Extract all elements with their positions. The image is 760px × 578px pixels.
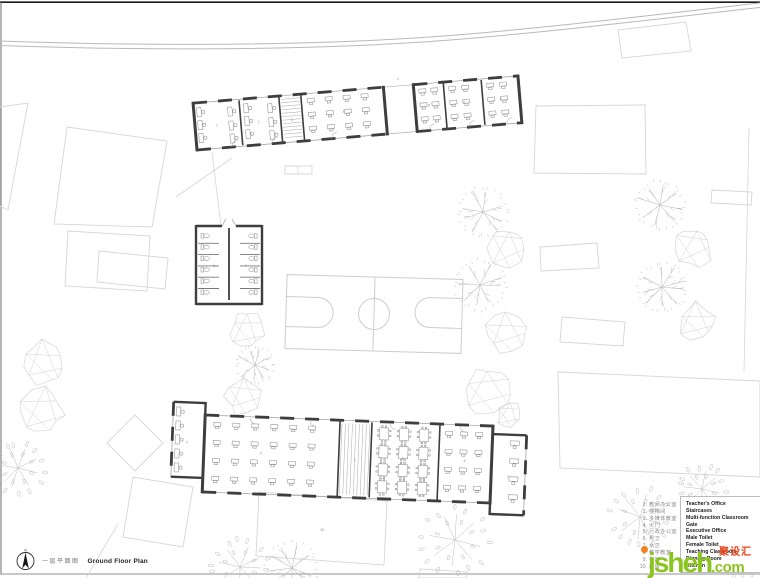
context-building-outline (97, 251, 168, 289)
legend-item-number: 1. (636, 502, 647, 509)
legend-item-zh: 教师办公室 (649, 502, 677, 509)
legend-item-en: Executive Office (686, 528, 760, 535)
drawing-title-zh: 一层平面图 (42, 556, 80, 565)
tree-symbol-polygon (485, 312, 527, 353)
room-label-male-toilet: 6 (213, 264, 215, 268)
room-label-exec-office: 5 (186, 440, 188, 444)
room-label-classroom-n1: 8 (428, 103, 430, 107)
tree-symbol-branch (634, 179, 687, 230)
legend-item-en: Teacher's Office (686, 501, 760, 508)
tree-symbol-polygon (498, 403, 520, 428)
room-label-classroom-s: 8 (260, 451, 262, 455)
tree-symbol-leafy (0, 441, 48, 496)
room-label-classroom-s2: 8 (464, 459, 466, 463)
south-building: 582981 (170, 401, 528, 517)
context-building-outline (65, 231, 150, 291)
tree-symbol-polygon (487, 231, 524, 268)
basketball-court (285, 275, 463, 354)
tree-symbol-leafy (419, 505, 493, 576)
room-label-yard: 10 (320, 528, 324, 532)
north-arrow-icon (22, 553, 29, 569)
legend-item-zh: 多媒体教室 (649, 516, 677, 523)
room-label-stair-north: 2 (291, 118, 293, 122)
site-plan-drawing: 112348886758298110N (0, 0, 760, 578)
tree-symbol-polygon (675, 231, 711, 268)
legend-item-number: 6. (636, 536, 647, 543)
tree-symbol-branch (458, 187, 510, 238)
room-label-dining: 9 (402, 457, 404, 461)
legend-item-number: 5. (636, 529, 647, 536)
compass-north-label: N (24, 548, 27, 552)
watermark-logo: jsheh.com (648, 549, 744, 577)
watermark-domain-suffix: .com (711, 559, 744, 576)
legend-item-number: 10. (636, 564, 647, 571)
tree-symbol-polygon (24, 339, 62, 386)
drawing-title-en: Ground Floor Plan (88, 558, 148, 565)
room-label-gate: 4 (397, 77, 399, 81)
watermark-brand-latin: jsheh (648, 547, 711, 578)
tree-symbol-leafy (208, 536, 271, 578)
context-building-outline (560, 317, 625, 346)
watermark-dot-icon (641, 546, 648, 553)
legend-row: 2.楼梯间 (636, 509, 677, 516)
toilet-building: 67 (196, 219, 262, 305)
legend-item-en: Staircases (686, 508, 760, 515)
drawing-title-block: 一层平面图 Ground Floor Plan (42, 556, 148, 565)
context-building-outline (618, 22, 691, 58)
context-building-outline (0, 103, 28, 210)
tree-symbol-branch (263, 540, 318, 578)
tree-symbol-polygon (680, 301, 715, 340)
legend-item-number: 9. (636, 557, 647, 564)
context-building-outline (107, 415, 163, 471)
legend-row: 1.教师办公室 (636, 502, 677, 509)
context-building-outline (54, 127, 167, 227)
context-building-outline (711, 190, 752, 205)
legend-item-number: 3. (636, 516, 647, 523)
flag-platform (285, 166, 312, 174)
context-building-outline (534, 105, 646, 174)
tree-symbol-branch (636, 262, 686, 313)
room-label-office-b: 1 (258, 120, 260, 124)
room-label-office-s: 1 (507, 475, 509, 479)
room-label-female-toilet: 7 (245, 264, 247, 268)
legend-row: 3.多媒体教室 (636, 516, 677, 523)
tree-symbol-polygon (20, 386, 65, 431)
context-building-outline (123, 477, 193, 547)
context-building-outline (540, 243, 599, 271)
legend-item-en: Multi-function Classroom (686, 515, 760, 522)
legend-item-en: Gate (686, 522, 760, 529)
room-label-stair-south: 2 (354, 458, 356, 462)
tree-symbol-polygon (230, 313, 265, 346)
legend-item-number: 2. (636, 509, 647, 516)
legend-item-en: Male Toilet (686, 535, 760, 542)
tree-symbol-polygon (466, 369, 510, 413)
floor-plan-sheet: 112348886758298110N 一层平面图 Ground Floor P… (0, 0, 760, 578)
room-label-office-a: 1 (216, 123, 218, 127)
legend-item-number: 4. (636, 523, 647, 530)
north-classroom-building: 11234888 (192, 67, 522, 151)
context-building-outline (558, 372, 760, 477)
legend-item-zh: 楼梯间 (649, 509, 666, 516)
tree-symbol-polygon (223, 377, 261, 414)
road (0, 3, 760, 49)
north-arrow-compass: N (17, 548, 34, 569)
